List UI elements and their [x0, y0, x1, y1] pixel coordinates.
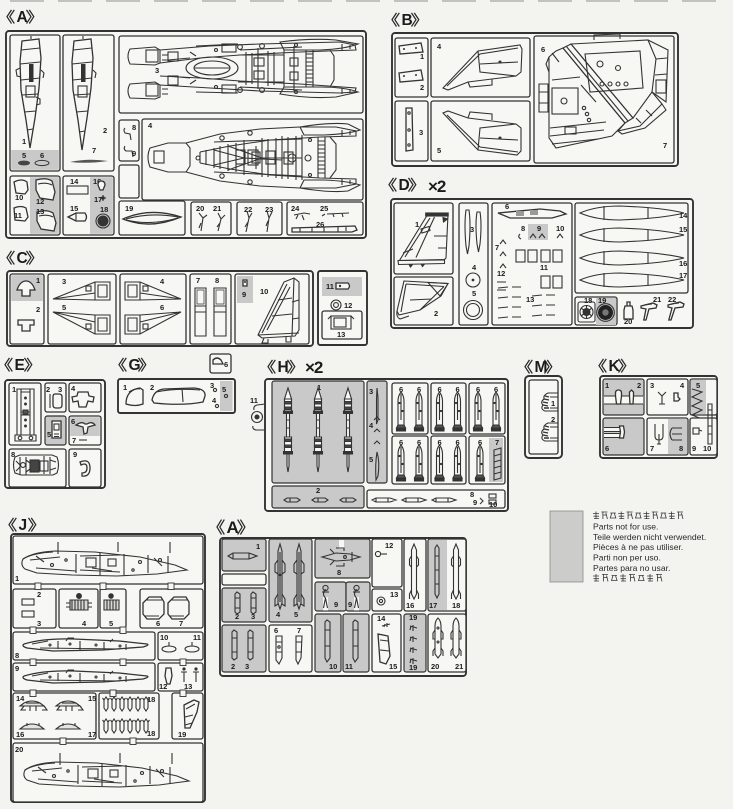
svg-text:1: 1: [123, 383, 127, 392]
svg-text:5: 5: [109, 619, 113, 628]
svg-text:11: 11: [193, 633, 201, 642]
svg-text:10: 10: [703, 444, 711, 453]
svg-text:2: 2: [46, 385, 50, 394]
svg-text:20: 20: [196, 204, 204, 213]
svg-text:1: 1: [22, 137, 26, 146]
svg-text:5: 5: [22, 151, 26, 160]
svg-text:7: 7: [196, 276, 200, 285]
svg-text:5: 5: [696, 381, 700, 390]
svg-text:A: A: [227, 518, 239, 537]
svg-text:H: H: [278, 359, 289, 376]
svg-text:19: 19: [125, 204, 133, 213]
svg-text:3: 3: [650, 381, 654, 390]
svg-text:10: 10: [556, 224, 564, 233]
svg-text:G: G: [129, 357, 141, 374]
svg-text:8: 8: [215, 276, 219, 285]
svg-text:10: 10: [15, 193, 23, 202]
svg-text:2: 2: [36, 305, 40, 314]
svg-text:1: 1: [15, 574, 19, 583]
svg-text:24: 24: [291, 204, 300, 213]
svg-text:M: M: [535, 359, 547, 376]
svg-text:Teile werden nicht verwendet.: Teile werden nicht verwendet.: [593, 532, 706, 542]
svg-text:12: 12: [385, 541, 393, 550]
svg-text:19: 19: [409, 613, 417, 622]
svg-text:22: 22: [244, 205, 252, 214]
svg-text:19: 19: [409, 663, 417, 672]
svg-text:1: 1: [36, 276, 40, 285]
svg-text:13: 13: [36, 207, 44, 216]
svg-text:2: 2: [434, 309, 438, 318]
svg-text:21: 21: [455, 662, 463, 671]
svg-text:K: K: [609, 358, 621, 375]
svg-text:14: 14: [679, 211, 688, 220]
svg-text:20: 20: [431, 662, 439, 671]
svg-text:25: 25: [320, 204, 328, 213]
svg-text:17: 17: [94, 195, 102, 204]
svg-text:11: 11: [250, 396, 258, 405]
svg-text:3: 3: [470, 225, 474, 234]
svg-text:11: 11: [345, 662, 353, 671]
svg-text:10: 10: [329, 662, 337, 671]
svg-text:3: 3: [58, 385, 62, 394]
svg-text:1: 1: [12, 385, 16, 394]
svg-text:8: 8: [15, 651, 19, 660]
svg-text:19: 19: [178, 730, 186, 739]
svg-text:20: 20: [15, 745, 23, 754]
svg-text:B: B: [402, 12, 413, 29]
svg-text:A: A: [17, 9, 28, 26]
svg-text:2: 2: [316, 486, 320, 495]
svg-text:Partes para no usar.: Partes para no usar.: [593, 563, 670, 573]
svg-text:5: 5: [294, 610, 298, 619]
svg-text:11: 11: [540, 263, 548, 272]
svg-text:2: 2: [231, 662, 235, 671]
svg-text:17: 17: [429, 601, 437, 610]
svg-text:3: 3: [155, 66, 159, 75]
svg-text:12: 12: [159, 682, 167, 691]
svg-text:9: 9: [132, 149, 136, 158]
svg-text:14: 14: [16, 694, 25, 703]
svg-text:14: 14: [70, 177, 79, 186]
svg-text:8: 8: [132, 123, 136, 132]
svg-text:D: D: [399, 177, 410, 194]
svg-text:15: 15: [70, 204, 78, 213]
svg-text:18: 18: [584, 296, 592, 305]
svg-text:6: 6: [160, 303, 164, 312]
svg-text:9: 9: [537, 224, 541, 233]
svg-text:21: 21: [213, 204, 221, 213]
svg-text:9: 9: [692, 444, 696, 453]
svg-text:8: 8: [679, 444, 683, 453]
svg-text:17: 17: [88, 730, 96, 739]
svg-text:18: 18: [100, 205, 108, 214]
svg-text:11: 11: [14, 211, 22, 220]
svg-text:×2: ×2: [305, 358, 323, 377]
svg-text:1: 1: [415, 220, 419, 229]
svg-text:Parti non per uso.: Parti non per uso.: [593, 553, 661, 563]
svg-text:3: 3: [245, 662, 249, 671]
svg-text:18: 18: [452, 601, 460, 610]
svg-text:2: 2: [637, 381, 641, 390]
svg-text:9: 9: [73, 450, 77, 459]
svg-text:13: 13: [390, 590, 398, 599]
svg-text:8: 8: [337, 568, 341, 577]
svg-text:1: 1: [256, 542, 260, 551]
svg-text:9: 9: [334, 600, 338, 609]
svg-text:17: 17: [679, 271, 687, 280]
svg-text:5: 5: [62, 303, 66, 312]
svg-text:1: 1: [420, 52, 424, 61]
svg-text:2: 2: [103, 126, 107, 135]
svg-text:6: 6: [156, 619, 160, 628]
svg-text:11: 11: [326, 282, 334, 291]
svg-text:1: 1: [551, 399, 555, 408]
svg-text:13: 13: [337, 330, 345, 339]
svg-text:5: 5: [437, 146, 441, 155]
svg-text:5: 5: [472, 289, 476, 298]
svg-text:5: 5: [47, 430, 51, 439]
svg-text:1: 1: [605, 381, 609, 390]
svg-text:E: E: [15, 357, 25, 374]
svg-text:2: 2: [420, 83, 424, 92]
svg-text:7: 7: [663, 141, 667, 150]
svg-text:7: 7: [495, 243, 499, 252]
svg-text:5: 5: [369, 455, 373, 464]
svg-text:6: 6: [605, 444, 609, 453]
svg-text:15: 15: [88, 694, 96, 703]
svg-text:12: 12: [36, 197, 44, 206]
svg-text:16: 16: [16, 730, 24, 739]
svg-text:7: 7: [297, 626, 301, 635]
svg-text:10: 10: [260, 287, 268, 296]
svg-text:21: 21: [653, 295, 661, 304]
svg-text:9: 9: [473, 498, 477, 507]
svg-text:5: 5: [222, 385, 226, 394]
svg-text:3: 3: [369, 387, 373, 396]
svg-text:6: 6: [274, 626, 278, 635]
svg-text:6: 6: [224, 360, 228, 369]
svg-text:3: 3: [37, 619, 41, 628]
svg-text:2: 2: [37, 590, 41, 599]
svg-text:Parts not for use.: Parts not for use.: [593, 521, 658, 531]
svg-text:×2: ×2: [428, 177, 446, 196]
svg-text:3: 3: [62, 277, 66, 286]
svg-text:9: 9: [15, 664, 19, 673]
svg-text:10: 10: [160, 633, 168, 642]
svg-text:9: 9: [348, 600, 352, 609]
svg-text:7: 7: [72, 436, 76, 445]
svg-text:12: 12: [497, 269, 505, 278]
svg-text:C: C: [17, 250, 28, 267]
svg-text:Pièces à ne pas utiliser.: Pièces à ne pas utiliser.: [593, 542, 683, 552]
svg-text:2: 2: [150, 383, 154, 392]
svg-text:3: 3: [419, 128, 423, 137]
svg-text:7: 7: [495, 438, 499, 447]
svg-text:8: 8: [521, 224, 525, 233]
svg-text:15: 15: [389, 662, 397, 671]
svg-text:6: 6: [505, 202, 509, 211]
svg-text:7: 7: [650, 444, 654, 453]
svg-text:16: 16: [679, 259, 687, 268]
svg-text:7: 7: [92, 146, 96, 155]
svg-text:9: 9: [242, 290, 246, 299]
svg-text:6: 6: [541, 45, 545, 54]
svg-text:14: 14: [377, 614, 386, 623]
svg-text:12: 12: [344, 301, 352, 310]
svg-text:15: 15: [679, 225, 687, 234]
svg-text:6: 6: [40, 151, 44, 160]
svg-text:6: 6: [71, 417, 75, 426]
svg-text:16: 16: [406, 601, 414, 610]
svg-text:7: 7: [179, 619, 183, 628]
svg-text:J: J: [19, 517, 27, 534]
svg-text:2: 2: [551, 415, 555, 424]
svg-text:10: 10: [489, 500, 497, 509]
